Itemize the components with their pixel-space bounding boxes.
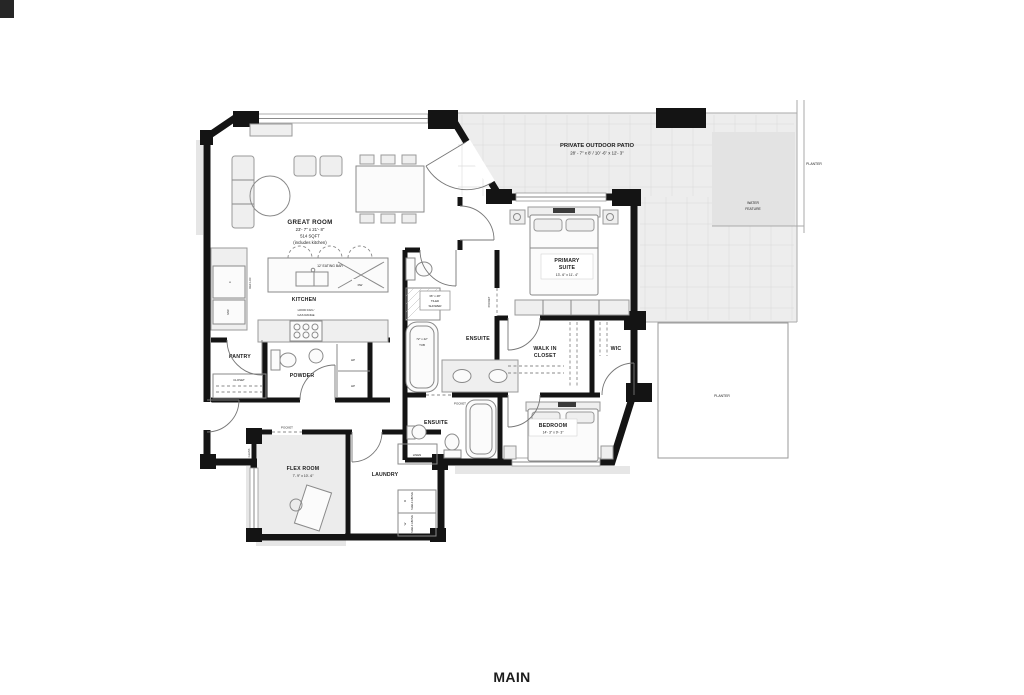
patio-title: PRIVATE OUTDOOR PATIO (560, 143, 634, 149)
nightstand (510, 210, 525, 224)
water-feature-label-1: WATER (747, 201, 759, 205)
toilet-bowl (445, 434, 459, 450)
wic: WIC (600, 322, 621, 356)
great-room-dims: 23'- 7" x 21'- 8" (296, 227, 325, 232)
pillow (566, 219, 594, 231)
primary-suite-label-1: PRIMARY (554, 258, 579, 264)
toilet-tank (444, 450, 461, 458)
floor-plan-page: PRIVATE OUTDOOR PATIO 28' - 7" x 8' / 10… (0, 0, 1024, 695)
toilet-bowl (280, 353, 296, 367)
flex-room-dims: 7'- 9" x 10'- 6" (293, 474, 315, 478)
primary-suite-dims: 13'- 6" x 11'- 4" (556, 273, 579, 277)
planter-upper-label: PLANTER (806, 162, 822, 166)
great-room-label: GREAT ROOM (287, 219, 332, 226)
glass-label: GLASS (247, 448, 251, 457)
primary-suite-window (516, 193, 606, 201)
patio-dims: 28' - 7" x 8' / 10' -6" x 12'- 3" (570, 151, 624, 156)
primary-suite-label-2: SUITE (559, 265, 576, 271)
hood-fan-label-2: GAS RANGE (297, 313, 314, 317)
area-rug (250, 176, 290, 216)
planter-lower-box (658, 323, 788, 458)
vanity-sink (489, 370, 507, 383)
dryer-shelf-label: SHELF ABOVE (410, 492, 414, 510)
hp-upper-label: HP (351, 358, 355, 362)
great-room: GREAT ROOM 23'- 7" x 21'- 8" 514 SQFT (i… (232, 124, 424, 245)
armchair (294, 156, 316, 176)
range-counter (258, 320, 388, 342)
eating-bar-label: 12' EATING BAR (317, 264, 343, 268)
ensuite-second-label: ENSUITE (424, 420, 448, 426)
tub-label: TUB (419, 343, 425, 347)
linen-label: LINEN (413, 453, 422, 457)
vanity-sink (453, 370, 471, 383)
bedroom-label: BEDROOM (539, 423, 568, 429)
great-room-window (258, 114, 428, 123)
dining-table (356, 166, 424, 212)
planter-lower-label: PLANTER (714, 394, 730, 398)
tub-size-label: 72" x 42" (416, 337, 428, 341)
walk-in-closet-label-2: CLOSET (534, 353, 557, 359)
soaker-tub (406, 322, 438, 392)
pillow (534, 219, 562, 231)
dishwasher-label: DW (358, 283, 363, 287)
kitchen: F REF LOC MW 12' EATING BAR DW KITCHEN H… (211, 246, 388, 342)
ensuite-main-label: ENSUITE (466, 336, 490, 342)
side-table (504, 446, 516, 459)
nightstand (603, 210, 618, 224)
ensuite-second: ENSUITE POCKET (407, 395, 496, 458)
plan-title: MAIN (493, 669, 530, 685)
powder-sink (309, 349, 323, 363)
media-console (250, 124, 292, 136)
kitchen-label: KITCHEN (292, 297, 317, 303)
powder-room: POWDER (271, 349, 323, 379)
closet-label: CLOSET (233, 378, 245, 382)
bedroom: BEDROOM 14'- 3" x 9'- 3" (504, 402, 613, 461)
walk-in-closet-label-1: WALK IN (533, 346, 556, 352)
side-table (601, 446, 613, 459)
water-feature-surface (712, 132, 795, 226)
hp-closets: HP HP (337, 344, 370, 398)
bar-stools (288, 246, 372, 258)
flex-room-window (250, 468, 258, 530)
powder-label: POWDER (290, 373, 315, 379)
hp-lower-label: HP (351, 384, 355, 388)
built-in-cabinets (515, 300, 629, 315)
page-corner-mark (0, 0, 14, 18)
ensuite-main: 36" x 48" TILED SHOWER 72" x 42" TUB ENS… (406, 258, 518, 392)
great-room-area: 514 SQFT (300, 234, 320, 239)
ensuite-pocket-label: POCKET (487, 296, 491, 307)
ensuite2-pocket-label: POCKET (454, 402, 466, 406)
toilet-tank (271, 350, 280, 370)
hood-fan-label-1: HOOD FAN / (298, 308, 315, 312)
shower-label: SHOWER (428, 304, 441, 308)
washer-shelf-label: SHELF ABOVE (410, 515, 414, 533)
pedestal-sink (412, 425, 426, 439)
toilet-tank (406, 258, 415, 280)
ref-loc-label: REF LOC (248, 277, 252, 288)
entry-closet: CLOSET (213, 374, 266, 398)
wic-label: WIC (611, 346, 622, 352)
primary-suite: PRIMARY SUITE 13'- 6" x 11'- 4" (510, 207, 629, 315)
floor-plan-canvas: PRIVATE OUTDOOR PATIO 28' - 7" x 8' / 10… (0, 0, 1024, 695)
microwave-label: MW (226, 309, 230, 314)
shower-size-label: 36" x 48" (429, 294, 441, 298)
flex-room-label: FLEX ROOM (287, 466, 320, 472)
fridge-label: F (228, 281, 232, 283)
dryer-label: D (403, 500, 407, 502)
wic-rods (600, 322, 607, 356)
great-room-note: (includes kitchen) (293, 240, 327, 245)
washer-label: W (403, 522, 407, 525)
water-feature-label-2: FEATURE (745, 207, 761, 211)
laundry-label: LAUNDRY (372, 472, 399, 478)
bedroom-dims: 14'- 3" x 9'- 3" (543, 431, 565, 435)
armchair (320, 156, 342, 176)
shower-tiled-label: TILED (431, 299, 439, 303)
flex-pocket-label: POCKET (281, 426, 293, 430)
